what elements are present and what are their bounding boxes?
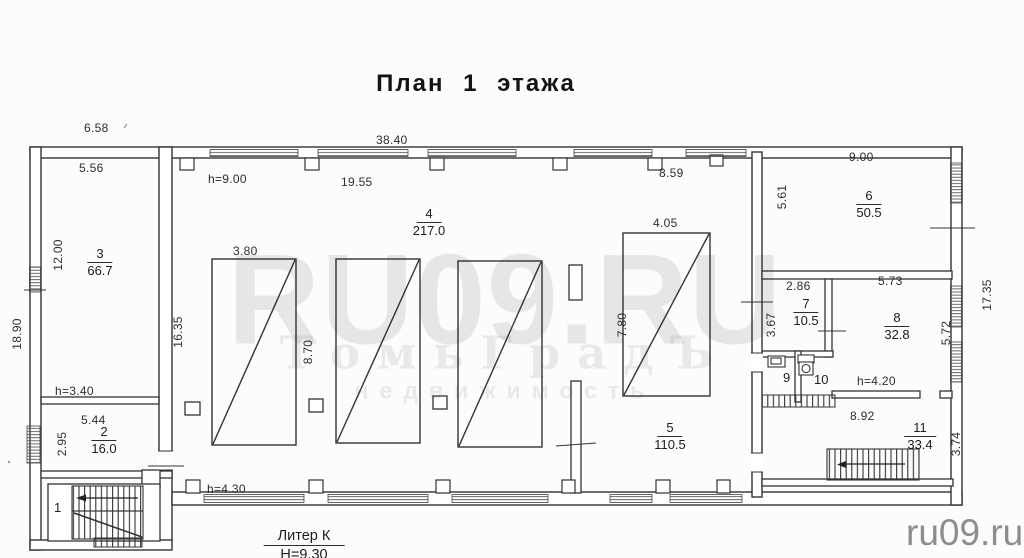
dim-18-90: 18.90 bbox=[10, 318, 24, 350]
dim-16-35: 16.35 bbox=[171, 316, 185, 348]
room-label-9: 9 bbox=[783, 370, 790, 385]
building-stamp: Литер К Н=9.30 bbox=[264, 527, 345, 558]
hatched-wall bbox=[762, 395, 835, 407]
staircase-room1 bbox=[48, 484, 160, 547]
dim-4-05: 4.05 bbox=[653, 216, 678, 230]
watermark-corner-url: ru09.ru bbox=[906, 512, 1023, 554]
room-label-2: 216.0 bbox=[91, 424, 116, 458]
dim-5-73: 5.73 bbox=[878, 274, 903, 288]
room-label-11: 1133.4 bbox=[904, 420, 936, 454]
dim-8-59: 8.59 bbox=[659, 166, 684, 180]
dim-2-86: 2.86 bbox=[786, 279, 811, 293]
dim-3-67: 3.67 bbox=[764, 313, 778, 338]
outer-walls bbox=[30, 147, 962, 550]
floor-plan-scan: RU09.RU ТомьГрадЪ недвижимость ru09.ru П… bbox=[0, 0, 1024, 558]
stamp-liter: Литер К bbox=[264, 527, 345, 546]
scan-dot bbox=[8, 461, 10, 463]
room-label-1: 1 bbox=[54, 500, 61, 515]
pilasters bbox=[180, 155, 730, 493]
staircase-room11 bbox=[827, 449, 919, 480]
floor-openings bbox=[212, 233, 710, 447]
dim-h-3-40: h=3.40 bbox=[55, 384, 94, 398]
room-label-6: 650.5 bbox=[856, 188, 881, 222]
dim-8-92: 8.92 bbox=[850, 409, 875, 423]
dim-9-00: 9.00 bbox=[849, 150, 874, 164]
dim-5-61: 5.61 bbox=[775, 185, 789, 210]
dim-19-55: 19.55 bbox=[341, 175, 373, 189]
dim-2-95: 2.95 bbox=[55, 432, 69, 457]
dim-38-40: 38.40 bbox=[376, 133, 408, 147]
room-label-10: 10 bbox=[814, 372, 828, 387]
room-label-4: 4217.0 bbox=[413, 206, 446, 240]
dim-h-9-00: h=9.00 bbox=[208, 172, 247, 186]
stamp-height: Н=9.30 bbox=[280, 546, 327, 558]
door-openings bbox=[158, 353, 763, 472]
dim-7-80: 7.80 bbox=[615, 313, 629, 338]
dim-5-56: 5.56 bbox=[79, 161, 104, 175]
dim-17-35: 17.35 bbox=[980, 279, 994, 311]
dim-5-72: 5.72 bbox=[939, 321, 953, 346]
room-label-5: 5110.5 bbox=[654, 420, 686, 454]
dim-8-70: 8.70 bbox=[301, 340, 315, 365]
toilet-icon bbox=[798, 355, 814, 375]
dim-3-74: 3.74 bbox=[949, 432, 963, 457]
dim-3-80: 3.80 bbox=[233, 244, 258, 258]
page-title: План 1 этажа bbox=[376, 70, 576, 98]
dim-5-44: 5.44 bbox=[81, 413, 106, 427]
room-label-8: 832.8 bbox=[884, 310, 909, 344]
room-label-7: 710.5 bbox=[793, 296, 818, 330]
dim-12-00: 12.00 bbox=[51, 239, 65, 271]
room-label-3: 366.7 bbox=[87, 246, 112, 280]
sink-icon bbox=[768, 356, 785, 367]
dim-6-58: 6.58 bbox=[84, 121, 109, 135]
dim-h-4-20: h=4.20 bbox=[857, 374, 896, 388]
dim-h-4-30: h=4.30 bbox=[207, 482, 246, 496]
